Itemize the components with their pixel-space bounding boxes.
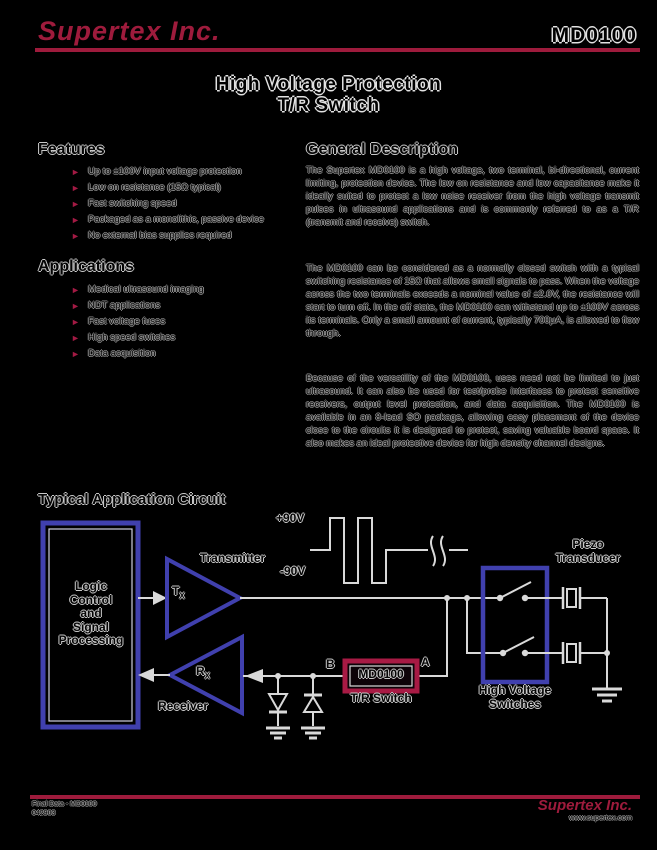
piezo-crystal [567, 589, 576, 607]
hv-switches-box [483, 568, 547, 682]
bullet-arrow-icon: ► [71, 332, 80, 344]
arrow-right-icon [153, 591, 167, 605]
receiver-label: Receiver [150, 700, 216, 714]
break-symbol [441, 536, 445, 566]
footer-supertex-logo: Supertex Inc. [538, 797, 632, 814]
description-paragraph-3: Because of the versatility of the MD0100… [306, 372, 639, 450]
circuit-heading: Typical Application Circuit [38, 491, 226, 508]
applications-heading: Applications [38, 258, 134, 276]
piezo-crystal [567, 644, 576, 662]
bullet-arrow-icon: ► [71, 214, 80, 226]
hv-switches-label: High Voltage Switches [464, 684, 566, 711]
features-list: ►Up to ±100V input voltage protection ►L… [38, 164, 350, 244]
tx-label: TX [172, 585, 185, 603]
bullet-arrow-icon: ► [71, 316, 80, 328]
plus-90v-label: +90V [276, 512, 304, 526]
diode-down-icon [269, 694, 287, 710]
bullet-arrow-icon: ► [71, 182, 80, 194]
rx-label: RX [196, 665, 210, 683]
footer-doc-date: 042903 [32, 810, 55, 819]
footer-doc-info: Final Data - MD0100 [32, 801, 97, 810]
pulse-waveform [310, 518, 428, 583]
bullet-arrow-icon: ► [71, 198, 80, 210]
node-b-label: B [326, 658, 335, 672]
switch-blade [503, 637, 534, 653]
node-a-label: A [421, 656, 430, 670]
applications-list: ►Medical ultrasound imaging ►NDT applica… [38, 282, 350, 362]
page-title-line2: T/R Switch [0, 95, 657, 116]
bullet-arrow-icon: ► [71, 230, 80, 242]
bullet-arrow-icon: ► [71, 300, 80, 312]
tr-switch-label: T/R Switch [340, 692, 422, 706]
md0100-label: MD0100 [347, 668, 415, 682]
header-rule [35, 48, 640, 52]
diode-up-icon [304, 697, 322, 712]
page-title-line1: High Voltage Protection [0, 74, 657, 95]
bullet-arrow-icon: ► [71, 284, 80, 296]
logic-block-label: Logic Control and Signal Processing [48, 580, 134, 648]
piezo-transducer-label: Piezo Transducer [538, 538, 638, 565]
description-paragraph-1: The Supertex MD0100 is a high voltage, t… [306, 164, 639, 229]
footer-website: www.supertex.com [569, 814, 632, 823]
supertex-logo: Supertex Inc. [38, 16, 221, 47]
application-item: ►Data acquisition [88, 346, 350, 362]
bullet-arrow-icon: ► [71, 348, 80, 360]
part-number: MD0100 [552, 24, 637, 48]
general-description-heading: General Description [306, 141, 458, 159]
features-heading: Features [38, 141, 105, 159]
datasheet-page: Supertex Inc. MD0100 High Voltage Protec… [0, 0, 657, 850]
bullet-arrow-icon: ► [71, 166, 80, 178]
minus-90v-label: -90V [280, 565, 305, 579]
break-symbol [431, 536, 435, 566]
description-paragraph-2: The MD0100 can be considered as a normal… [306, 262, 639, 340]
feature-item: ►No external bias supplies required [88, 228, 350, 244]
arrow-left-icon [245, 669, 263, 683]
transmitter-label: Transmitter [190, 552, 275, 566]
